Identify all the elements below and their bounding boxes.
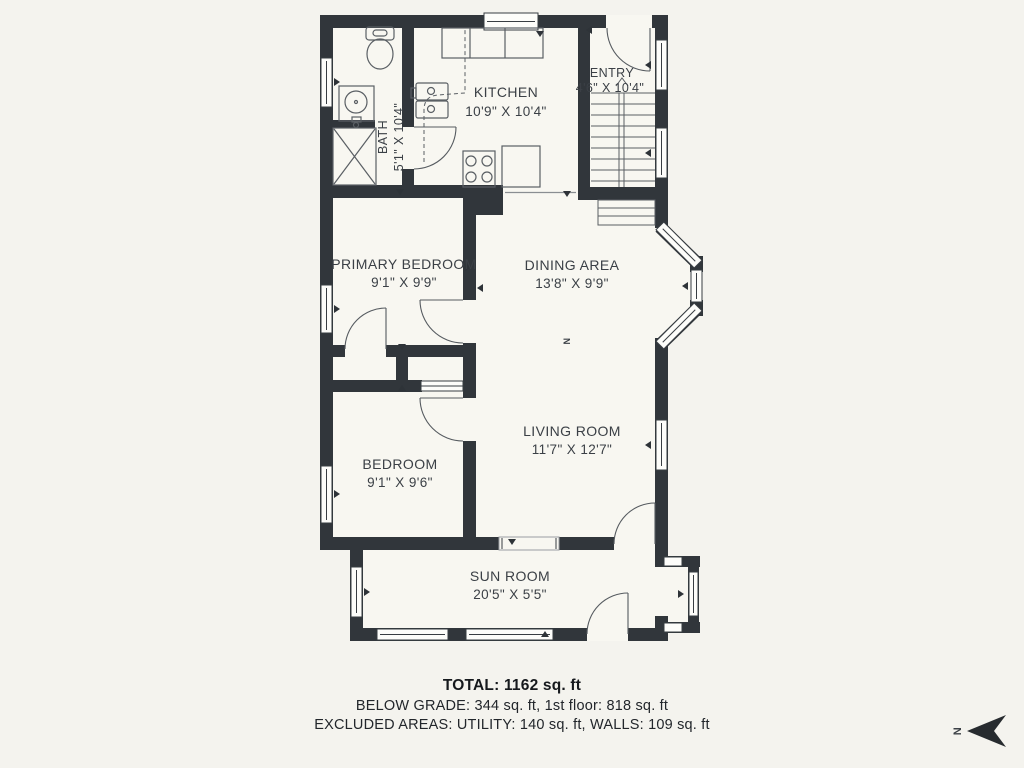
room-dims-bedroom: 9'1" X 9'6" <box>367 475 433 490</box>
window <box>656 40 667 90</box>
window <box>664 557 682 566</box>
area-summary: TOTAL: 1162 sq. ft BELOW GRADE: 344 sq. … <box>0 677 1024 733</box>
room-label-bedroom: BEDROOM <box>362 456 437 472</box>
window <box>689 572 698 616</box>
room-label-kitchen: KITCHEN <box>474 84 538 100</box>
excluded-area-text: EXCLUDED AREAS: UTILITY: 140 sq. ft, WAL… <box>0 717 1024 733</box>
window <box>351 567 362 617</box>
room-dims-primary: 9'1" X 9'9" <box>371 275 437 290</box>
window <box>321 285 332 333</box>
window <box>656 420 667 470</box>
room-dims-living: 11'7" X 12'7" <box>532 442 613 457</box>
window <box>466 629 553 640</box>
room-label-entry: ENTRY <box>590 66 634 80</box>
room-dims-bath: 5'1" X 10'4" <box>392 103 406 172</box>
room-label-primary: PRIMARY BEDROOM <box>331 256 477 272</box>
room-label-bath: BATH <box>376 120 390 154</box>
room-dims-entry: 4'6" X 10'4" <box>576 81 645 95</box>
room-label-dining: DINING AREA <box>525 257 620 273</box>
room-dims-kitchen: 10'9" X 10'4" <box>465 104 547 119</box>
window <box>656 128 667 178</box>
window <box>664 623 682 632</box>
floorplan-svg: BATH 5'1" X 10'4" KITCHEN 10'9" X 10'4" … <box>0 0 1024 768</box>
floorplan-page: BATH 5'1" X 10'4" KITCHEN 10'9" X 10'4" … <box>0 0 1024 768</box>
window <box>321 466 332 523</box>
window <box>377 629 448 640</box>
mini-north-label: N <box>562 338 572 345</box>
living-sunroom-opening <box>499 537 559 550</box>
total-area-text: TOTAL: 1162 sq. ft <box>0 677 1024 695</box>
room-dims-sunroom: 20'5" X 5'5" <box>473 587 547 602</box>
window <box>321 58 332 107</box>
closet-door <box>421 381 463 391</box>
room-label-living: LIVING ROOM <box>523 423 621 439</box>
room-dims-dining: 13'8" X 9'9" <box>535 276 609 291</box>
grade-area-text: BELOW GRADE: 344 sq. ft, 1st floor: 818 … <box>0 698 1024 714</box>
room-label-sunroom: SUN ROOM <box>470 568 550 584</box>
window <box>691 270 702 302</box>
